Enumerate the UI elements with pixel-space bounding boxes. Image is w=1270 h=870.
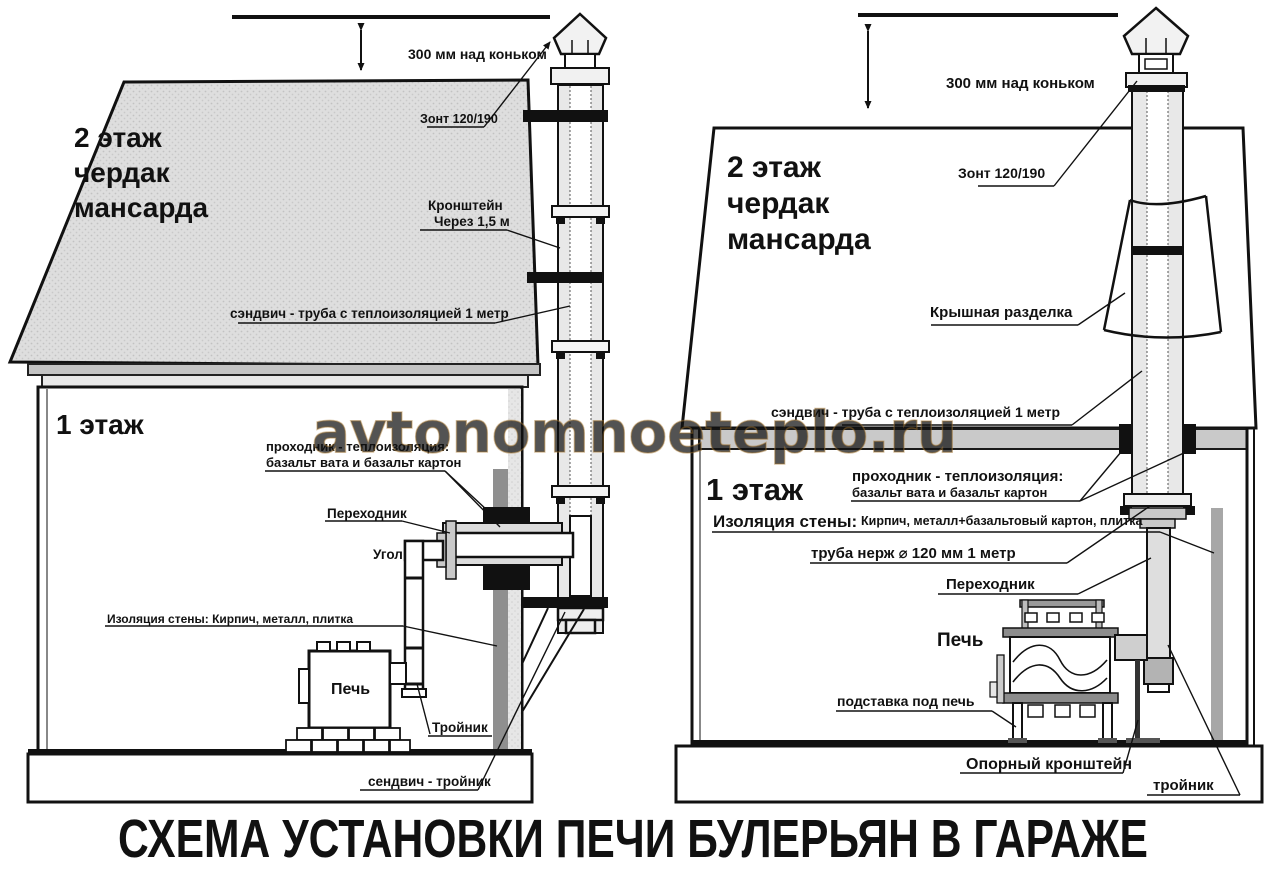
right-tee bbox=[1144, 658, 1173, 684]
right-umbrella-cap-icon bbox=[1124, 8, 1188, 54]
left-floor1-label: 1 этаж bbox=[56, 409, 145, 440]
left-elbow-label: Угол bbox=[373, 547, 403, 562]
right-ceiling-pass-block-left bbox=[1119, 424, 1132, 454]
right-stove-label: Печь bbox=[937, 630, 983, 651]
right-adapter-step2 bbox=[1140, 519, 1175, 528]
left-bracket-band-3 bbox=[522, 597, 608, 608]
left-bracket-label-line1: Кронштейн bbox=[428, 198, 503, 213]
right-floor1-label: 1 этаж bbox=[706, 472, 804, 507]
left-bracket-band-1 bbox=[523, 110, 608, 122]
left-bracket-label-line2: Через 1,5 м bbox=[434, 214, 510, 229]
right-stove-leg-right bbox=[1103, 703, 1112, 740]
left-floor2-line3: мансарда bbox=[74, 192, 208, 223]
right-pass-label-line2: базальт вата и базальт картон bbox=[852, 485, 1047, 500]
left-strut-1 bbox=[522, 609, 584, 712]
left-eaves-board-2 bbox=[42, 375, 528, 387]
right-roof-flashing-label: Крышная разделка bbox=[930, 304, 1073, 321]
right-stove-door-handle bbox=[997, 655, 1004, 703]
left-stove-door-handle bbox=[299, 669, 309, 703]
watermark: avtonomnoeteplo.ru bbox=[312, 400, 957, 466]
left-stove-label: Печь bbox=[331, 681, 370, 698]
right-stove-foot-right bbox=[1098, 738, 1117, 743]
left-brick-base bbox=[286, 728, 410, 752]
right-pass-label-line1: проходник - теплоизоляция: bbox=[852, 468, 1063, 485]
left-eaves-board-1 bbox=[28, 364, 540, 375]
right-tee-bottom-cap bbox=[1148, 684, 1169, 692]
right-adapter-label: Переходник bbox=[946, 576, 1035, 593]
right-stove-leg-left bbox=[1013, 703, 1022, 740]
right-stove-foot-left bbox=[1008, 738, 1027, 743]
right-steel-pipe-label: труба нерж ⌀ 120 мм 1 метр bbox=[811, 545, 1016, 562]
buleryan-installation-scheme: 2 этаж чердак мансарда 300 мм над конько… bbox=[0, 0, 1270, 870]
left-sandwich-tee-label: сендвич - тройник bbox=[368, 774, 491, 789]
diagram-canvas: 2 этаж чердак мансарда 300 мм над конько… bbox=[0, 0, 1270, 870]
right-steel-pipe bbox=[1147, 528, 1170, 659]
left-sandwich-pipe-label: сэндвич - труба с теплоизоляцией 1 метр bbox=[230, 306, 509, 321]
right-wall-insulation-rest: Кирпич, металл+базальтовый картон, плитк… bbox=[861, 514, 1143, 528]
right-wall-insulation-screen bbox=[1211, 508, 1223, 742]
right-floor2-line3: мансарда bbox=[727, 223, 871, 256]
right-ridge-clearance-label: 300 мм над коньком bbox=[946, 75, 1095, 92]
right-tee-label: тройник bbox=[1153, 777, 1214, 794]
left-bracket-band-2 bbox=[527, 272, 604, 283]
right-support-bracket-label: Опорный кронштейн bbox=[966, 756, 1132, 773]
left-floor2-line2: чердак bbox=[74, 157, 171, 188]
left-umbrella-cap-icon bbox=[554, 14, 606, 54]
left-adapter-label: Переходник bbox=[327, 506, 407, 521]
left-stove-outlet bbox=[390, 663, 406, 684]
left-wall-insulation-label: Изоляция стены: Кирпич, металл, плитка bbox=[107, 612, 353, 626]
right-cap-label: Зонт 120/190 bbox=[958, 165, 1045, 181]
left-ridge-clearance-label: 300 мм над коньком bbox=[408, 46, 547, 62]
right-floor2-line2: чердак bbox=[727, 187, 830, 220]
left-adapter-flange bbox=[446, 521, 456, 579]
right-stove-stand-label: подставка под печь bbox=[837, 693, 975, 709]
left-tee-label: Тройник bbox=[432, 720, 488, 735]
right-stove bbox=[990, 600, 1160, 743]
left-cap-label: Зонт 120/190 bbox=[420, 112, 498, 126]
right-pipe-joint-collar bbox=[1124, 494, 1191, 506]
right-ceiling-pass-block-right bbox=[1183, 424, 1196, 454]
right-wall-insulation-title: Изоляция стены: bbox=[713, 512, 857, 531]
right-pipe-band bbox=[1132, 246, 1183, 255]
right-floor2-line1: 2 этаж bbox=[727, 151, 822, 184]
left-floor2-line1: 2 этаж bbox=[74, 122, 163, 153]
page-caption: СХЕМА УСТАНОВКИ ПЕЧИ БУЛЕРЬЯН В ГАРАЖЕ bbox=[118, 809, 1148, 869]
right-stove-outlet-duct bbox=[1115, 635, 1147, 660]
